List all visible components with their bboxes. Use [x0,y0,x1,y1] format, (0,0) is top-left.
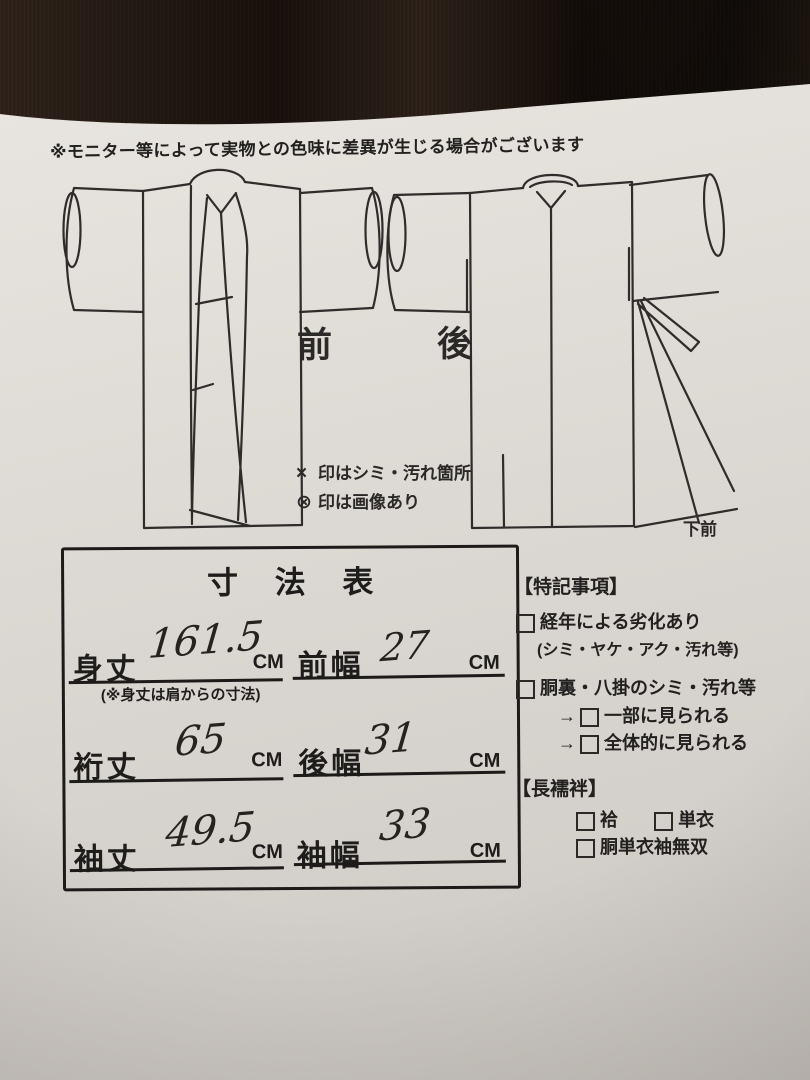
note-overall-label: 全体的に見られる [604,733,748,753]
legend-stain-line: ×印はシミ・汚れ箇所 [296,459,471,488]
sleeve-length-unit: CM [252,841,283,864]
checkbox-awase [576,812,595,831]
circled-x-icon: ⊗ [296,488,318,517]
arrow-right-icon: → [558,706,580,727]
front-width-unit: CM [469,652,500,675]
front-width-value: 27 [378,622,431,670]
note-lining-stains: 胴裏・八掛のシミ・汚れ等 [516,674,756,700]
lower-front-label: 下前 [683,515,717,540]
x-mark-icon: × [296,459,318,488]
front-hem-overlap [190,510,250,526]
nagajuban-dou-hitoe-label: 胴単衣袖無双 [600,837,708,857]
note-aging: 経年による劣化あり [516,608,701,634]
nagajuban-options-row: 袷 単衣 [576,806,714,832]
body-length-unit: CM [253,651,284,674]
nagajuban-awase-label: 袷 [600,810,618,830]
front-collar-lines [191,186,248,524]
kimono-front-label: 前 [297,317,333,368]
special-notes-title: 【特記事項】 [514,572,628,599]
lower-front-flap [635,298,737,527]
nagajuban-hitoe-label: 単衣 [678,810,714,830]
back-left-cuff [389,197,406,271]
nagajuban-title: 【長襦袢】 [512,774,607,801]
back-right-cuff [701,173,727,256]
back-neckband [523,175,578,188]
nagajuban-option3-row: 胴単衣袖無双 [576,833,708,859]
note-partial: → 一部に見られる [558,702,730,728]
body-length-note: (※身丈は肩からの寸法) [101,683,261,705]
sleeve-reach-unit: CM [251,749,282,772]
checkbox-hitoe [654,812,673,831]
legend-photo-line: ⊗印は画像あり [296,488,471,517]
sleeve-width-label: 袖幅 [297,831,363,875]
back-left-sleeve [387,193,470,312]
checkbox-overall [580,735,599,754]
note-overall: → 全体的に見られる [558,729,748,755]
checkbox-aging [516,614,535,633]
note-lining-stains-label: 胴裏・八掛のシミ・汚れ等 [540,678,756,698]
back-fold-line [503,455,504,527]
kimono-back-label: 後 [437,316,473,367]
legend-stain-text: 印はシミ・汚れ箇所 [318,464,471,483]
sleeve-length-value: 49.5 [164,804,257,857]
note-aging-detail: (シミ・ヤケ・アク・汚れ等) [537,636,739,660]
front-neckband [190,170,245,184]
legend-photo-text: 印は画像あり [318,493,420,512]
sleeve-width-value: 33 [377,800,432,850]
photo-of-measurement-sheet: ※モニター等によって実物との色味に差異が生じる場合がございます [0,0,810,1080]
paper-sheet: ※モニター等によって実物との色味に差異が生じる場合がございます [0,0,810,1080]
checkbox-partial [580,708,599,727]
back-centre-seam [551,208,552,526]
note-partial-label: 一部に見られる [604,706,730,726]
back-width-unit: CM [469,750,500,773]
back-collar-v [537,191,565,208]
front-collar-v [207,193,236,213]
sleeve-reach-value: 65 [173,715,228,765]
back-width-value: 31 [363,714,418,764]
size-table-title: 寸 法 表 [64,556,516,604]
note-aging-label: 経年による劣化あり [540,612,701,632]
checkbox-dou-hitoe [576,839,595,858]
checkbox-lining-stains [516,680,535,699]
stain-legend: ×印はシミ・汚れ箇所 ⊗印は画像あり [296,459,471,517]
size-table: 寸 法 表 身丈 161.5 CM 前幅 27 CM (※身丈は肩からの寸法) … [61,545,521,892]
arrow-right-icon: → [558,733,580,754]
body-length-value: 161.5 [146,613,265,668]
